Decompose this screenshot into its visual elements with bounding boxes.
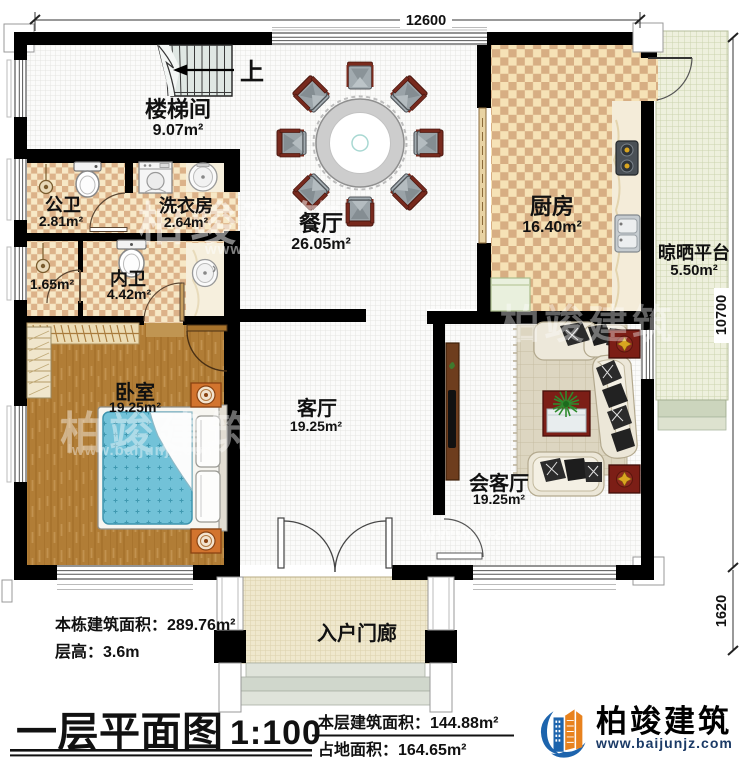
svg-text:19.25m²: 19.25m²	[290, 418, 342, 434]
svg-text:楼梯间: 楼梯间	[145, 97, 211, 122]
svg-text:www.baijunjz.com: www.baijunjz.com	[71, 442, 217, 459]
svg-text:公卫: 公卫	[45, 195, 81, 215]
svg-text:4.42m²: 4.42m²	[107, 286, 152, 302]
svg-text:2.64m²: 2.64m²	[164, 214, 209, 230]
svg-text:洗衣房: 洗衣房	[159, 195, 213, 216]
svg-text:www.baijunjz.com: www.baijunjz.com	[419, 523, 625, 545]
svg-text:入户门廊: 入户门廊	[317, 621, 397, 645]
svg-text:一层平面图: 一层平面图	[16, 709, 224, 755]
svg-text:9.07m²: 9.07m²	[153, 122, 204, 139]
svg-text:1620: 1620	[714, 595, 730, 627]
svg-text:5.50m²: 5.50m²	[670, 262, 718, 279]
svg-text:2.81m²: 2.81m²	[39, 213, 84, 229]
svg-text:柏竣建筑: 柏竣建筑	[500, 303, 676, 347]
svg-text:层高：3.6m: 层高：3.6m	[55, 642, 139, 661]
svg-text:26.05m²: 26.05m²	[291, 236, 351, 253]
svg-text:本栋建筑面积：289.76m²: 本栋建筑面积：289.76m²	[55, 615, 236, 634]
svg-text:10700: 10700	[714, 295, 730, 335]
svg-text:www.baijunjz.com: www.baijunjz.com	[595, 735, 733, 751]
svg-text:占地面积：164.65m²: 占地面积：164.65m²	[318, 740, 467, 759]
svg-text:柏竣建筑: 柏竣建筑	[596, 704, 732, 739]
svg-text:上: 上	[240, 59, 264, 86]
svg-text:厨房: 厨房	[530, 194, 574, 219]
svg-text:客厅: 客厅	[296, 396, 337, 420]
svg-text:1:100: 1:100	[230, 714, 322, 752]
svg-text:餐厅: 餐厅	[299, 211, 343, 236]
svg-text:16.40m²: 16.40m²	[522, 219, 582, 236]
svg-text:晾晒平台: 晾晒平台	[658, 242, 730, 263]
svg-text:19.25m²: 19.25m²	[473, 491, 525, 507]
svg-text:1.65m²: 1.65m²	[30, 276, 75, 292]
svg-text:本层建筑面积：144.88m²: 本层建筑面积：144.88m²	[318, 713, 499, 732]
svg-text:19.25m²: 19.25m²	[109, 399, 161, 415]
svg-text:12600: 12600	[406, 13, 446, 29]
